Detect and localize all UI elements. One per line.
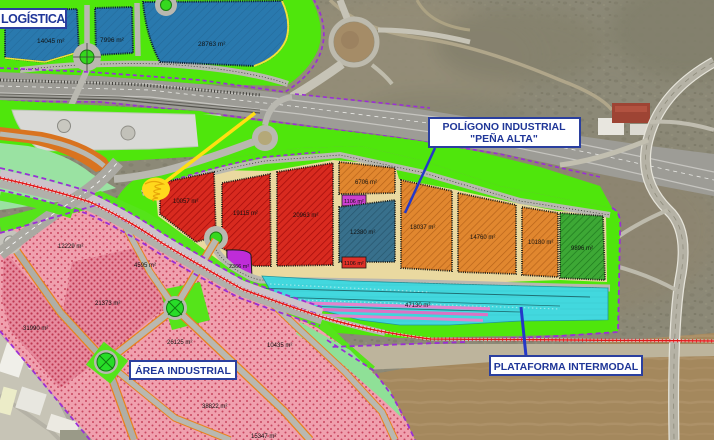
svg-text:7996 m²: 7996 m² [100,37,125,44]
svg-text:21373 m²: 21373 m² [95,301,120,307]
svg-text:9896 m²: 9896 m² [571,246,593,252]
svg-text:12380 m²: 12380 m² [350,230,375,236]
svg-text:1106 m²: 1106 m² [344,261,364,267]
svg-text:6706 m²: 6706 m² [355,180,377,186]
svg-text:10180 m²: 10180 m² [528,240,553,246]
svg-text:PLATAFORMA INTERMODAL: PLATAFORMA INTERMODAL [494,361,639,373]
svg-text:LOGÍSTICA: LOGÍSTICA [1,11,65,26]
svg-text:14760 m²: 14760 m² [470,235,495,241]
svg-text:15347 m²: 15347 m² [251,434,276,440]
svg-text:28763 m²: 28763 m² [198,41,226,48]
svg-text:POLÍGONO INDUSTRIAL: POLÍGONO INDUSTRIAL [442,120,566,133]
svg-text:14045 m²: 14045 m² [37,38,65,45]
svg-text:31990 m²: 31990 m² [23,326,48,332]
svg-text:20963 m²: 20963 m² [293,213,318,219]
svg-text:4595 m²: 4595 m² [134,263,156,269]
svg-text:2366 m²: 2366 m² [229,264,249,270]
svg-text:10435 m²: 10435 m² [267,343,292,349]
svg-text:26125 m²: 26125 m² [167,340,192,346]
svg-text:38822 m²: 38822 m² [202,404,227,410]
svg-text:19115 m²: 19115 m² [233,211,258,217]
svg-text:12229 m²: 12229 m² [58,244,83,250]
svg-text:10057 m²: 10057 m² [173,199,198,205]
svg-text:47130 m²: 47130 m² [405,303,430,309]
svg-text:ÁREA INDUSTRIAL: ÁREA INDUSTRIAL [135,364,231,377]
svg-text:18037 m²: 18037 m² [410,225,435,231]
svg-text:"PEÑA ALTA": "PEÑA ALTA" [470,132,538,145]
